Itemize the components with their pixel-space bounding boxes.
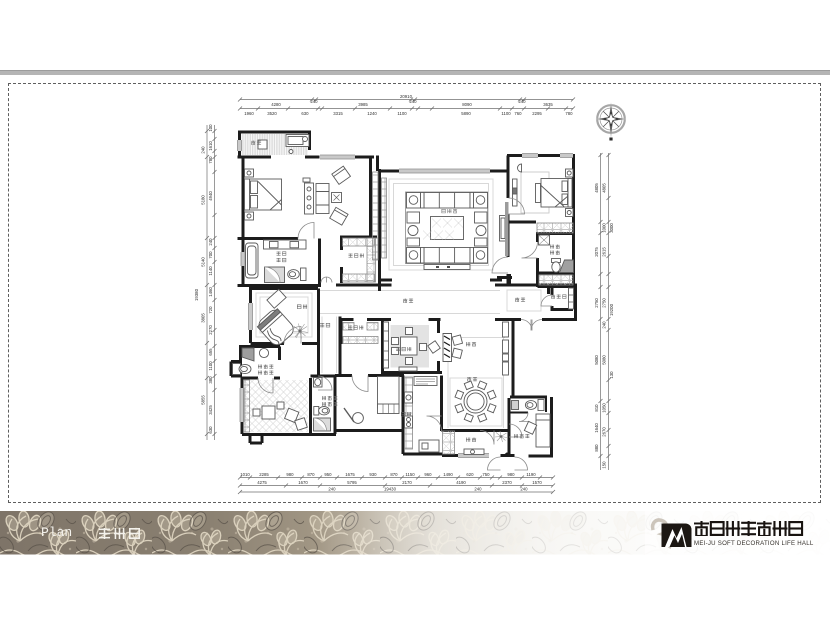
- svg-text:1150: 1150: [405, 472, 415, 477]
- svg-text:240: 240: [602, 321, 607, 329]
- svg-text:240: 240: [518, 99, 526, 104]
- svg-text:20910: 20910: [400, 94, 413, 99]
- svg-text:3425: 3425: [208, 405, 213, 415]
- svg-text:5140: 5140: [201, 257, 206, 267]
- svg-text:5890: 5890: [461, 111, 471, 116]
- svg-text:1140: 1140: [208, 266, 213, 276]
- svg-text:2295: 2295: [532, 111, 542, 116]
- svg-text:1050: 1050: [602, 403, 607, 413]
- svg-text:380: 380: [208, 376, 213, 384]
- svg-text:4190: 4190: [456, 480, 466, 485]
- svg-text:1240: 1240: [367, 111, 377, 116]
- svg-text:4805: 4805: [594, 183, 599, 193]
- svg-text:810: 810: [594, 404, 599, 412]
- svg-text:1000: 1000: [602, 223, 607, 233]
- svg-text:2750: 2750: [602, 298, 607, 308]
- svg-text:240: 240: [310, 99, 318, 104]
- svg-text:1640: 1640: [594, 423, 599, 433]
- svg-text:780: 780: [565, 111, 573, 116]
- svg-text:630: 630: [301, 111, 309, 116]
- svg-text:870: 870: [307, 472, 315, 477]
- svg-text:980: 980: [286, 472, 294, 477]
- svg-text:1960: 1960: [244, 111, 254, 116]
- svg-text:5080: 5080: [602, 355, 607, 365]
- svg-text:240: 240: [208, 238, 213, 246]
- svg-text:960: 960: [424, 472, 432, 477]
- svg-text:5855: 5855: [201, 395, 206, 405]
- svg-text:950: 950: [324, 472, 332, 477]
- svg-text:3805: 3805: [201, 313, 206, 323]
- svg-text:870: 870: [390, 472, 398, 477]
- svg-text:700: 700: [208, 251, 213, 259]
- svg-text:1100: 1100: [501, 111, 511, 116]
- svg-text:240: 240: [474, 486, 482, 491]
- svg-text:2075: 2075: [594, 247, 599, 257]
- svg-text:19380: 19380: [194, 288, 199, 301]
- svg-text:2670: 2670: [602, 427, 607, 437]
- svg-text:720: 720: [208, 306, 213, 314]
- svg-text:5180: 5180: [201, 195, 206, 205]
- svg-text:780: 780: [208, 156, 213, 164]
- svg-text:750: 750: [482, 472, 490, 477]
- svg-text:620: 620: [466, 472, 474, 477]
- svg-text:1100: 1100: [208, 361, 213, 371]
- svg-text:240: 240: [328, 486, 336, 491]
- svg-text:2285: 2285: [259, 472, 269, 477]
- svg-text:240: 240: [520, 486, 528, 491]
- svg-text:3520: 3520: [267, 111, 277, 116]
- svg-text:1670: 1670: [298, 480, 308, 485]
- svg-text:2370: 2370: [502, 480, 512, 485]
- svg-text:930: 930: [369, 472, 377, 477]
- svg-text:655: 655: [208, 348, 213, 356]
- svg-text:630: 630: [208, 426, 213, 434]
- svg-text:880: 880: [594, 444, 599, 452]
- svg-text:760: 760: [514, 111, 522, 116]
- svg-text:19430: 19430: [384, 486, 397, 491]
- svg-text:4805: 4805: [602, 183, 607, 193]
- svg-text:3985: 3985: [358, 102, 368, 107]
- svg-text:3635: 3635: [543, 102, 553, 107]
- svg-text:2270: 2270: [208, 325, 213, 335]
- svg-text:3000: 3000: [609, 223, 614, 233]
- svg-text:2750: 2750: [594, 298, 599, 308]
- svg-text:150: 150: [602, 461, 607, 469]
- svg-text:1490: 1490: [443, 472, 453, 477]
- svg-text:1010: 1010: [240, 472, 250, 477]
- svg-text:2170: 2170: [402, 480, 412, 485]
- svg-text:1100: 1100: [397, 111, 407, 116]
- svg-text:980: 980: [507, 472, 515, 477]
- svg-text:4940: 4940: [208, 191, 213, 201]
- svg-text:240: 240: [201, 146, 206, 154]
- svg-text:2615: 2615: [602, 247, 607, 257]
- svg-text:240: 240: [409, 99, 417, 104]
- svg-text:4280: 4280: [271, 102, 281, 107]
- svg-text:1570: 1570: [532, 480, 542, 485]
- svg-text:100: 100: [208, 124, 213, 132]
- svg-text:5080: 5080: [594, 355, 599, 365]
- svg-text:3315: 3315: [333, 111, 343, 116]
- svg-text:1610: 1610: [208, 141, 213, 151]
- svg-text:4275: 4275: [257, 480, 267, 485]
- svg-text:1460: 1460: [208, 287, 213, 297]
- svg-text:19200: 19200: [609, 303, 614, 316]
- svg-text:130: 130: [609, 371, 614, 379]
- svg-text:1675: 1675: [345, 472, 355, 477]
- svg-text:1190: 1190: [526, 472, 536, 477]
- svg-text:8090: 8090: [462, 102, 472, 107]
- svg-text:5795: 5795: [347, 480, 357, 485]
